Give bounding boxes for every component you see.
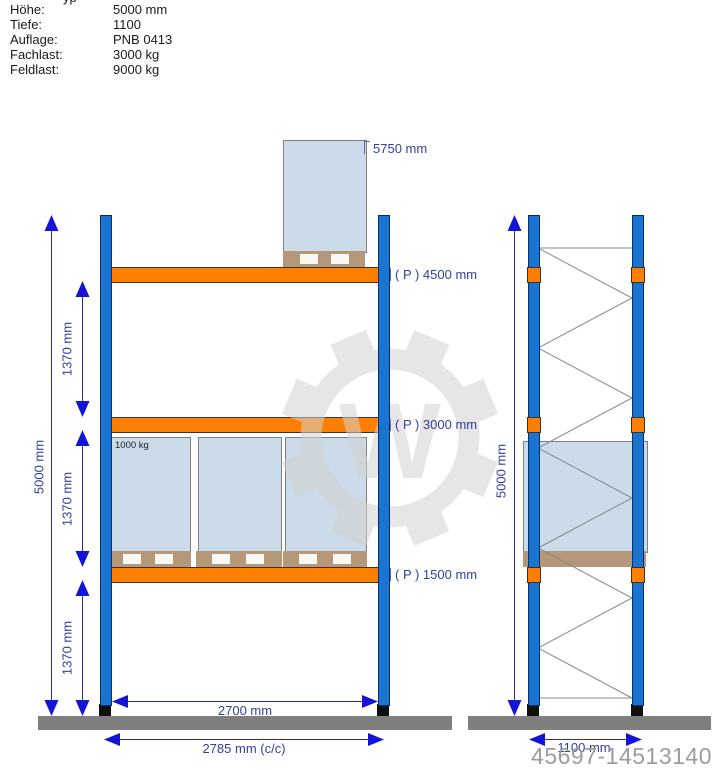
front-upright-right xyxy=(378,215,390,706)
side-connector xyxy=(631,567,645,583)
gear-letter: W xyxy=(339,380,441,501)
top-load-height-label: 5750 mm xyxy=(373,141,427,156)
id-watermark-text: 45697-14513140 xyxy=(531,743,712,770)
rack-drawing: yp Höhe: 5000 mm Tiefe: 1100 Auflage: PN… xyxy=(0,0,717,770)
side-connector xyxy=(527,567,541,583)
front-spacing-label-2: 1370 mm xyxy=(60,472,75,526)
side-total-height-label: 5000 mm xyxy=(494,444,509,498)
beam-label-1500: ( P ) 1500 mm xyxy=(395,567,477,582)
side-connector xyxy=(631,417,645,433)
front-spacing-label-3: 1370 mm xyxy=(60,621,75,675)
center-width-label: 2785 mm (c/c) xyxy=(169,741,319,756)
beam-label-3000: ( P ) 3000 mm xyxy=(395,417,477,432)
front-upright-left xyxy=(100,215,112,706)
side-upright-right xyxy=(632,215,644,706)
side-upright-left xyxy=(528,215,540,706)
side-connector xyxy=(527,267,541,283)
side-connector xyxy=(527,417,541,433)
side-connector xyxy=(631,267,645,283)
clear-width-label: 2700 mm xyxy=(200,703,290,718)
front-spacing-label-1: 1370 mm xyxy=(60,322,75,376)
front-total-height-label: 5000 mm xyxy=(32,440,47,494)
beam-label-4500: ( P ) 4500 mm xyxy=(395,267,477,282)
